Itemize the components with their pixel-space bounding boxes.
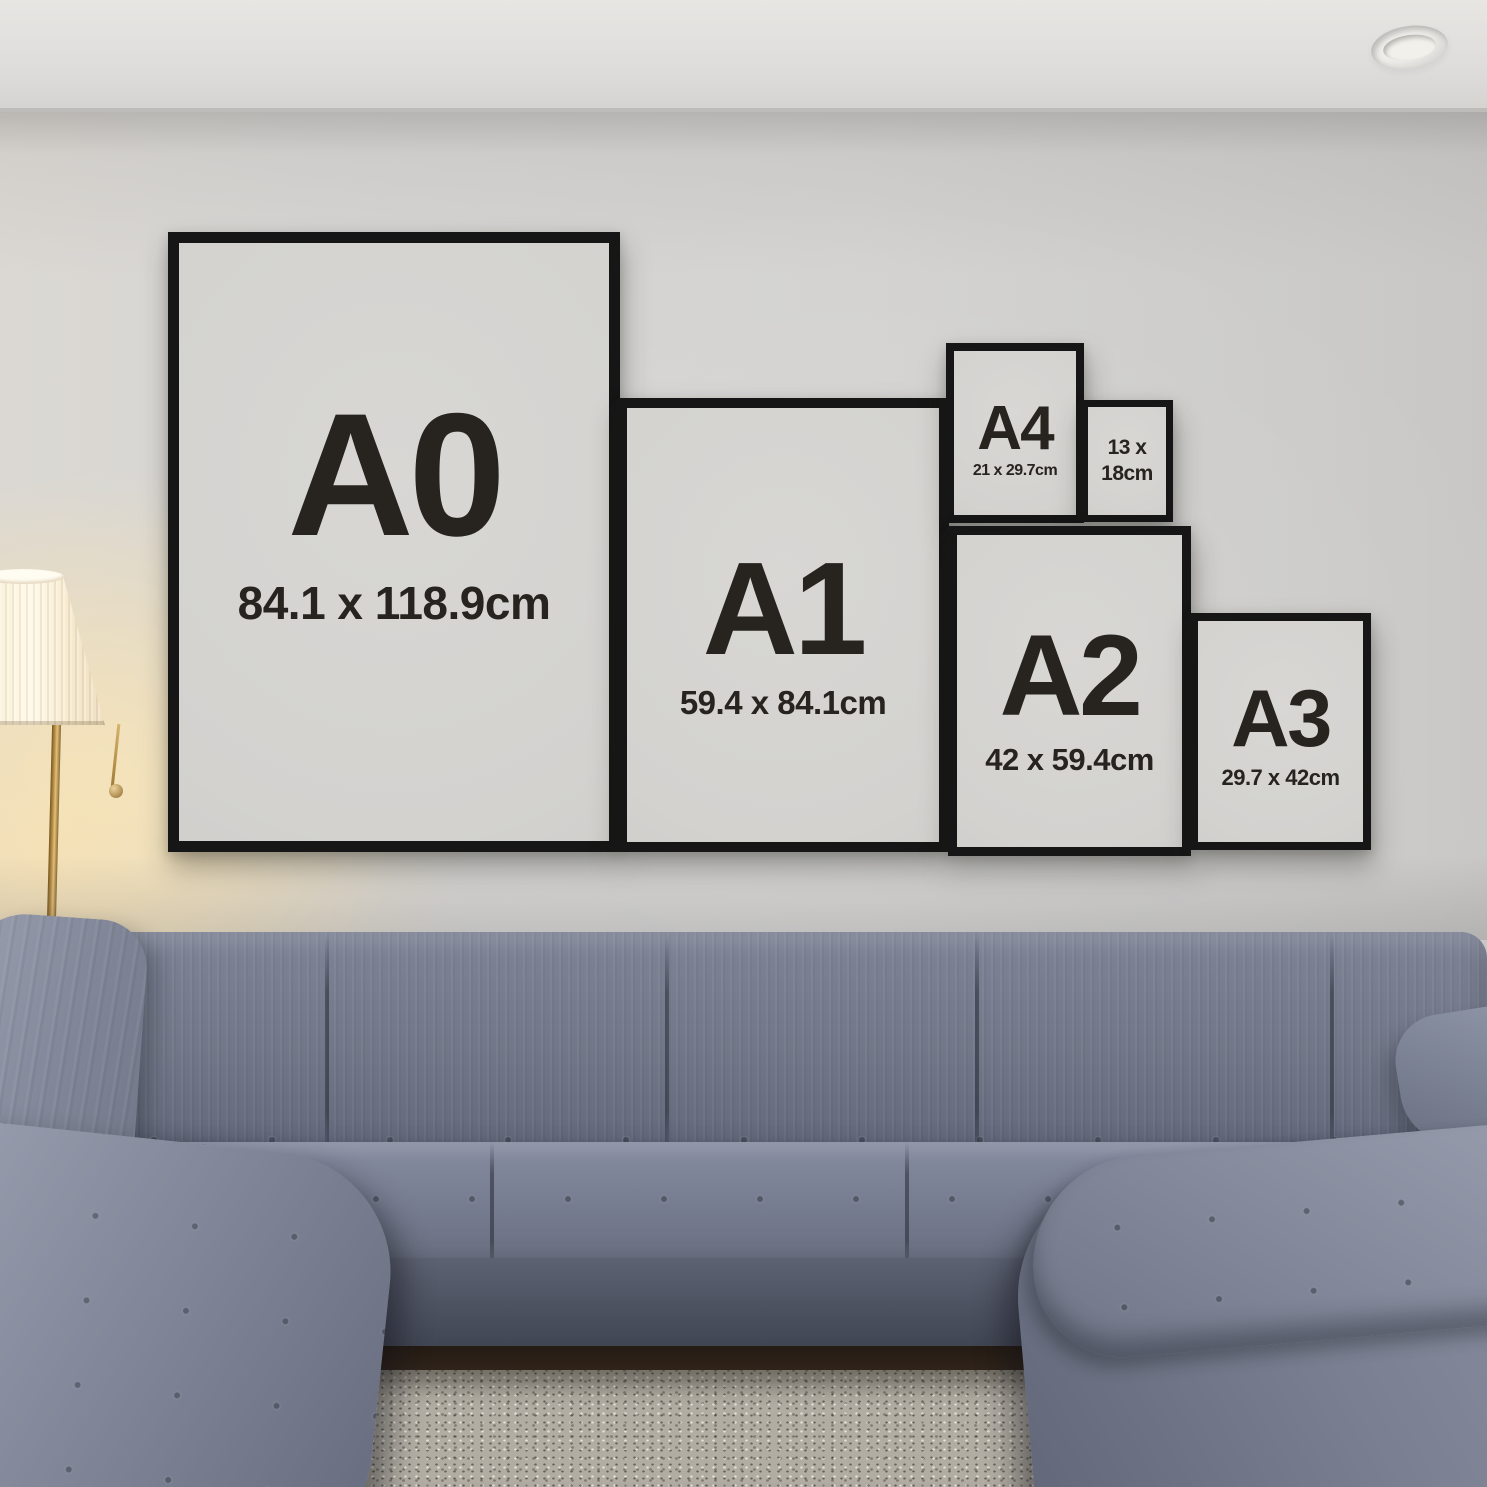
poster-a2-dimensions: 42 x 59.4cm [985, 742, 1154, 778]
ceiling-wall-shadow [0, 108, 1487, 154]
poster-a0-paper: A0 84.1 x 118.9cm [179, 243, 609, 841]
ceiling [0, 0, 1487, 112]
sofa-back-seam [325, 932, 329, 1172]
poster-a4-label: A4 [977, 400, 1053, 457]
poster-a1-paper: A1 59.4 x 84.1cm [627, 408, 939, 842]
poster-a3-label: A3 [1231, 682, 1330, 757]
poster-a3-dimensions: 29.7 x 42cm [1221, 765, 1339, 791]
poster-a3-paper: A3 29.7 x 42cm [1198, 621, 1363, 842]
poster-frame-a4: A4 21 x 29.7cm [946, 343, 1084, 523]
living-room-poster-size-guide: A0 84.1 x 118.9cm A1 59.4 x 84.1cm A4 21… [0, 0, 1487, 1487]
sofa-back-seam [665, 932, 669, 1172]
poster-a4-paper: A4 21 x 29.7cm [954, 351, 1076, 515]
sofa-back-seam [1330, 932, 1334, 1172]
sofa-back-seam [975, 932, 979, 1172]
poster-a2-paper: A2 42 x 59.4cm [957, 535, 1182, 847]
poster-frame-a1: A1 59.4 x 84.1cm [617, 398, 949, 852]
poster-frame-a3: A3 29.7 x 42cm [1190, 613, 1371, 850]
poster-13x18-paper: 13 x 18cm [1088, 407, 1166, 515]
poster-a2-label: A2 [999, 624, 1139, 730]
poster-13x18-dimensions-line1: 13 x [1108, 435, 1147, 461]
poster-a0-dimensions: 84.1 x 118.9cm [238, 576, 551, 630]
sofa-seat-seam [905, 1142, 909, 1272]
poster-frame-13x18: 13 x 18cm [1081, 400, 1173, 522]
poster-frame-a2: A2 42 x 59.4cm [948, 526, 1191, 856]
sofa-seat-seam [490, 1142, 494, 1272]
poster-a0-label: A0 [287, 395, 500, 556]
sofa-backrest [55, 932, 1487, 1172]
poster-a1-dimensions: 59.4 x 84.1cm [680, 684, 886, 722]
sofa-wall-shadow [0, 856, 1487, 940]
lamp-pull-chain-ball [109, 784, 123, 798]
poster-13x18-dimensions-line2: 18cm [1101, 461, 1153, 487]
poster-frame-a0: A0 84.1 x 118.9cm [168, 232, 620, 852]
poster-a1-label: A1 [703, 548, 864, 669]
poster-a4-dimensions: 21 x 29.7cm [973, 462, 1057, 480]
